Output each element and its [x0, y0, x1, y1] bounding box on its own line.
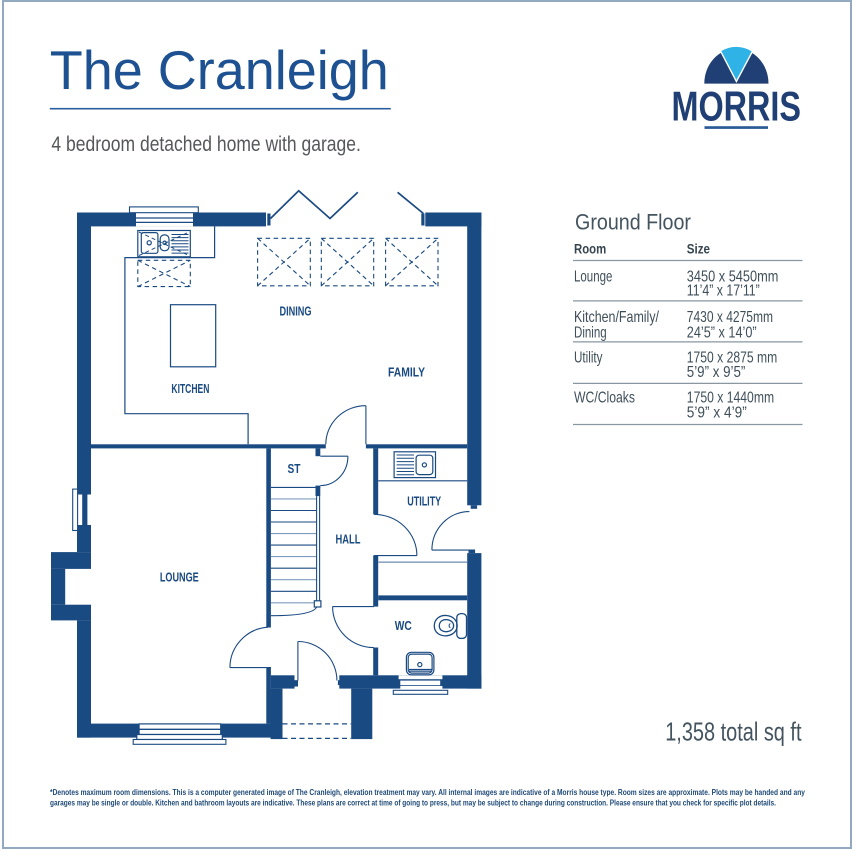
svg-text:1,358 total sq ft: 1,358 total sq ft: [665, 716, 802, 746]
svg-text:24’5” x 14’0”: 24’5” x 14’0”: [687, 324, 757, 341]
svg-text:4 bedroom detached home with g: 4 bedroom detached home with garage.: [51, 132, 361, 156]
svg-text:5’9” x 4’9”: 5’9” x 4’9”: [687, 405, 747, 422]
svg-text:garages may be single or doubl: garages may be single or double. Kitchen…: [50, 798, 776, 808]
svg-text:Room: Room: [574, 242, 606, 257]
svg-text:WC/Cloaks: WC/Cloaks: [574, 390, 635, 407]
svg-text:ST: ST: [288, 461, 301, 476]
svg-text:Ground Floor: Ground Floor: [575, 210, 691, 235]
svg-text:Size: Size: [687, 242, 711, 257]
svg-text:HALL: HALL: [336, 532, 361, 547]
svg-text:LOUNGE: LOUNGE: [160, 570, 199, 585]
svg-text:KITCHEN: KITCHEN: [171, 381, 209, 396]
svg-text:5’9” x 9’5”: 5’9” x 9’5”: [687, 364, 746, 381]
svg-text:UTILITY: UTILITY: [407, 494, 441, 509]
svg-text:MORRIS: MORRIS: [672, 83, 802, 130]
svg-text:11’4” x 17’11”: 11’4” x 17’11”: [687, 282, 760, 299]
svg-text:*Denotes maximum room dimensio: *Denotes maximum room dimensions. This i…: [50, 787, 805, 797]
svg-text:Dining: Dining: [574, 324, 607, 341]
svg-text:Utility: Utility: [574, 350, 603, 367]
svg-text:Lounge: Lounge: [574, 268, 612, 285]
svg-text:The Cranleigh: The Cranleigh: [50, 39, 389, 101]
svg-text:FAMILY: FAMILY: [388, 364, 425, 379]
svg-text:DINING: DINING: [279, 304, 311, 319]
svg-text:WC: WC: [395, 618, 412, 633]
